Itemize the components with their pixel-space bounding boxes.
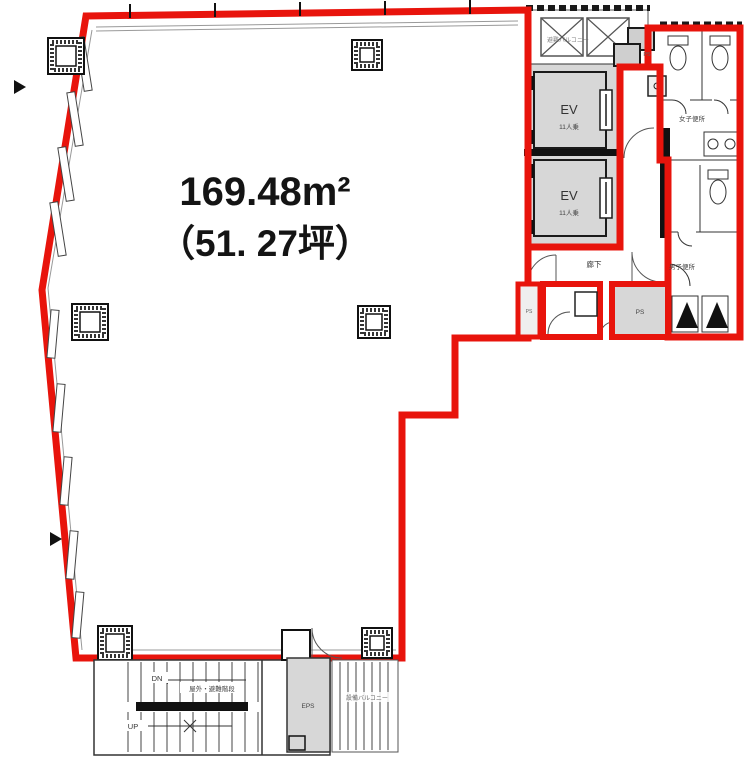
- ps-mid-label: PS: [636, 309, 645, 316]
- outdoor-stairs-label: 屋外・避難階段: [189, 684, 235, 693]
- sk-sink: [575, 292, 597, 316]
- stairs-up-label: UP: [128, 722, 138, 731]
- column: [48, 38, 84, 74]
- urinal-icon: [672, 296, 728, 332]
- eps-label: EPS: [301, 703, 315, 710]
- fire-hydrant-box: [282, 630, 310, 660]
- stairs-dn-label: DN: [152, 674, 163, 683]
- column: [358, 306, 390, 338]
- ev2-capacity-label: 11人乗: [559, 208, 579, 217]
- mens-toilet-room: [668, 165, 740, 332]
- floor-plan-drawing: 避難バルコニー: [0, 0, 745, 769]
- ev1-label: EV: [560, 102, 578, 117]
- womens-toilet-label: 女子便所: [679, 114, 706, 123]
- column: [98, 626, 132, 660]
- door-arc: [312, 628, 342, 658]
- area-tsubo-label: （51. 27坪）: [158, 223, 372, 264]
- ps-top-label: PS: [643, 52, 651, 58]
- corridor-label: 廊下: [587, 259, 602, 269]
- service-balcony: [332, 660, 398, 752]
- escape-balcony-label: 避難バルコニー: [547, 36, 589, 44]
- service-balcony-label: 設備バルコニー: [346, 694, 388, 702]
- arrow-marker-icon: [50, 532, 62, 546]
- column: [72, 304, 108, 340]
- door-arc: [624, 128, 654, 158]
- office-inner-walls: [48, 21, 518, 650]
- womens-toilet-room: [662, 28, 740, 160]
- ev1-capacity-label: 11人乗: [559, 122, 579, 131]
- column: [352, 40, 382, 70]
- elevator-shaft: [524, 64, 620, 247]
- ps-strip-label: PS: [526, 309, 533, 315]
- columns: [48, 38, 392, 660]
- arrow-marker-icon: [14, 80, 26, 94]
- area-m2-label: 169.48m²: [179, 170, 350, 214]
- column: [362, 628, 392, 658]
- mens-toilet-label: 男子便所: [669, 262, 696, 271]
- ev2-label: EV: [560, 188, 578, 203]
- floor-plan: 避難バルコニー: [0, 0, 745, 769]
- leased-area-outline: [42, 10, 528, 658]
